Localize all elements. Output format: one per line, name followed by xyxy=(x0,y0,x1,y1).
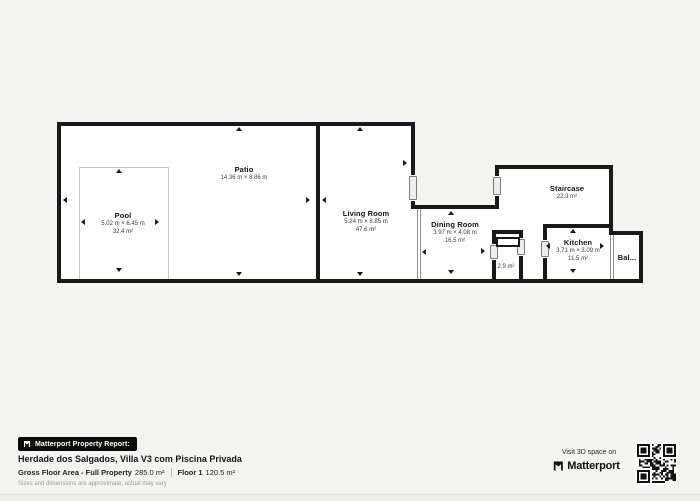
closet-fixture xyxy=(496,237,520,247)
dimension-arrow xyxy=(63,197,67,203)
dimension-arrow xyxy=(236,127,242,131)
dimension-arrow xyxy=(116,268,122,272)
room-label-staircase: Staircase 22.3 m² xyxy=(550,184,584,201)
divider xyxy=(171,468,172,477)
room-area: 32.4 m² xyxy=(101,228,145,236)
badge-label: Matterport Property Report: xyxy=(35,441,130,448)
property-report-badge: Matterport Property Report: xyxy=(18,437,137,451)
room-name: Bal... xyxy=(618,253,637,262)
room-dimensions: 3.97 m × 4.08 m xyxy=(431,229,479,237)
wall-segment-staircase-top xyxy=(495,165,613,169)
room-label-kitchen: Kitchen 3.71 m × 3.09 m 11.5 m² xyxy=(556,238,600,263)
wall-segment-left xyxy=(57,122,61,283)
dimension-arrow xyxy=(155,219,159,225)
room-label-closet: 2.9 m² xyxy=(497,263,514,271)
dimension-arrow xyxy=(116,169,122,173)
matterport-wordmark: Matterport xyxy=(567,460,619,472)
room-area: 2.9 m² xyxy=(497,263,514,271)
room-name: Living Room xyxy=(343,209,390,218)
dimension-arrow xyxy=(600,243,604,249)
room-dimensions: 3.71 m × 3.09 m xyxy=(556,247,600,255)
room-label-balcony: Bal... xyxy=(618,253,637,262)
property-name: Herdade dos Salgados, Villa V3 com Pisci… xyxy=(18,454,242,464)
dimension-arrow xyxy=(448,211,454,215)
dimension-arrow xyxy=(322,197,326,203)
glass-door-living-dining xyxy=(417,209,421,279)
matterport-logo: Matterport xyxy=(552,460,619,472)
wall-segment-patio-living-divider xyxy=(316,122,320,283)
dimension-arrow xyxy=(357,127,363,131)
gross-floor-area-value: 285.0 m² xyxy=(135,468,165,477)
room-name: Staircase xyxy=(550,184,584,193)
dimension-arrow xyxy=(357,272,363,276)
dimension-arrow xyxy=(81,219,85,225)
dimension-arrow xyxy=(570,269,576,273)
glass-door-kitchen-balcony xyxy=(610,235,614,279)
wall-segment-bottom xyxy=(57,279,643,283)
matterport-floor-plan-page: Patio 14.36 m × 8.86 m Pool 5.02 m × 6.4… xyxy=(0,0,700,500)
matterport-logo-icon xyxy=(23,440,31,448)
room-label-pool: Pool 5.02 m × 6.45 m 32.4 m² xyxy=(101,211,145,236)
dimension-arrow xyxy=(422,249,426,255)
door-staircase-left xyxy=(493,177,501,195)
matterport-logo-icon xyxy=(552,460,564,472)
dimension-arrow xyxy=(546,243,550,249)
floor-label: Floor 1 xyxy=(178,468,203,477)
dimension-arrow xyxy=(403,160,407,166)
qr-code xyxy=(635,442,678,485)
room-name: Dining Room xyxy=(431,220,479,229)
floor-area-stats: Gross Floor Area - Full Property 285.0 m… xyxy=(18,468,235,477)
door-closet-left xyxy=(490,245,498,259)
room-dimensions: 5.02 m × 6.45 m xyxy=(101,220,145,228)
room-label-dining-room: Dining Room 3.97 m × 4.08 m 16.5 m² xyxy=(431,220,479,245)
room-label-patio: Patio 14.36 m × 8.86 m xyxy=(221,165,268,182)
dimension-arrow xyxy=(236,272,242,276)
dimension-arrow xyxy=(306,197,310,203)
wall-segment-balcony-right xyxy=(639,231,643,283)
wall-segment-kitchen-top xyxy=(543,224,613,228)
wall-segment-top xyxy=(57,122,415,126)
dimension-arrow xyxy=(481,248,485,254)
floor-area-value: 120.5 m² xyxy=(206,468,236,477)
room-dimensions: 5.24 m × 8.85 m xyxy=(343,218,390,226)
room-area: 16.5 m² xyxy=(431,237,479,245)
wall-segment-dining-top xyxy=(411,205,499,209)
dimension-arrow xyxy=(448,270,454,274)
room-name: Patio xyxy=(221,165,268,174)
wall-segment-balcony-top xyxy=(609,231,643,235)
visit-3d-space-label: Visit 3D space on xyxy=(562,449,616,456)
room-name: Pool xyxy=(101,211,145,220)
dimension-arrow xyxy=(570,229,576,233)
room-area: 47.6 m² xyxy=(343,226,390,234)
room-label-living-room: Living Room 5.24 m × 8.85 m 47.6 m² xyxy=(343,209,390,234)
room-area: 22.3 m² xyxy=(550,193,584,201)
disclaimer-text: Sizes and dimensions are approximate, ac… xyxy=(18,481,167,487)
window-living-right xyxy=(409,176,417,200)
room-dimensions: 14.36 m × 8.86 m xyxy=(221,174,268,182)
room-area: 11.5 m² xyxy=(556,255,600,263)
gross-floor-area-label: Gross Floor Area - Full Property xyxy=(18,468,132,477)
room-name: Kitchen xyxy=(556,238,600,247)
